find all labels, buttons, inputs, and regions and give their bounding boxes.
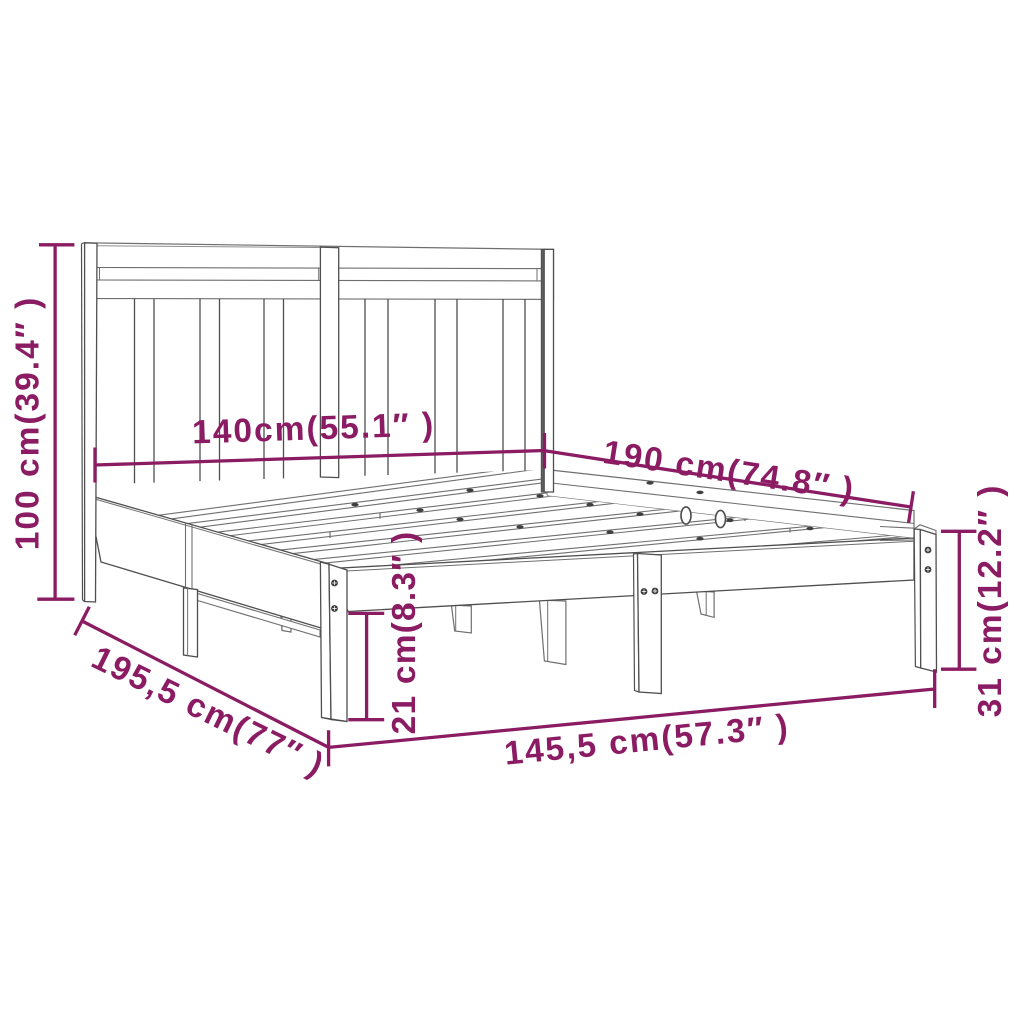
svg-text:31 cm(12.2″ ): 31 cm(12.2″ ) xyxy=(972,484,1009,718)
svg-text:21 cm(8.3″ ): 21 cm(8.3″ ) xyxy=(386,531,423,735)
svg-text:100 cm(39.4″ ): 100 cm(39.4″ ) xyxy=(10,296,47,551)
